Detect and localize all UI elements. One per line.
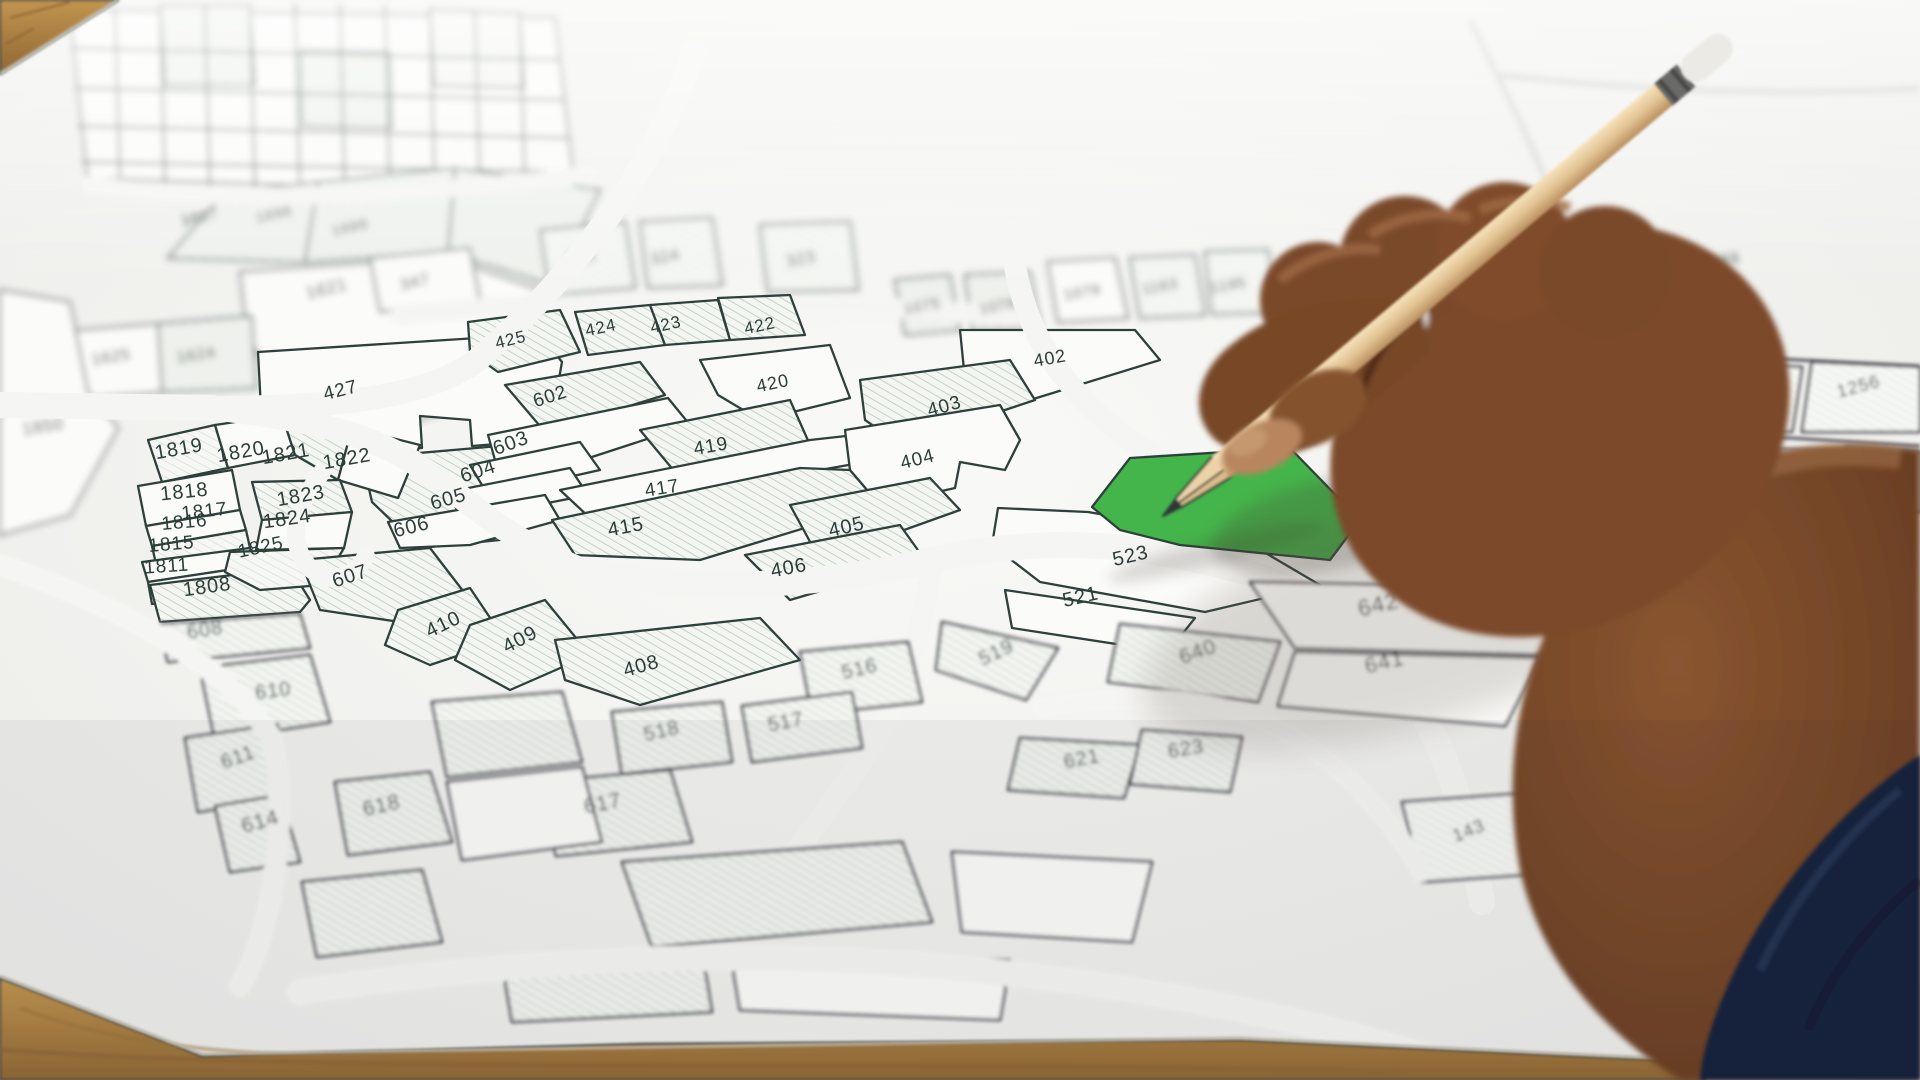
cadastral-map-photo: Photograph: a hand holding a wooden penc…: [0, 0, 1920, 1080]
photo-scene: Photograph: a hand holding a wooden penc…: [0, 0, 1920, 1080]
bottom-shade: [0, 720, 1920, 1080]
parcel-label-1815: 1815: [148, 532, 196, 557]
parcel-label-610: 610: [254, 678, 293, 704]
parcel-label-1816: 1816: [161, 510, 209, 535]
knuckle: [1539, 206, 1671, 338]
road: [0, 405, 212, 408]
parcel-label-1811: 1811: [144, 554, 190, 578]
